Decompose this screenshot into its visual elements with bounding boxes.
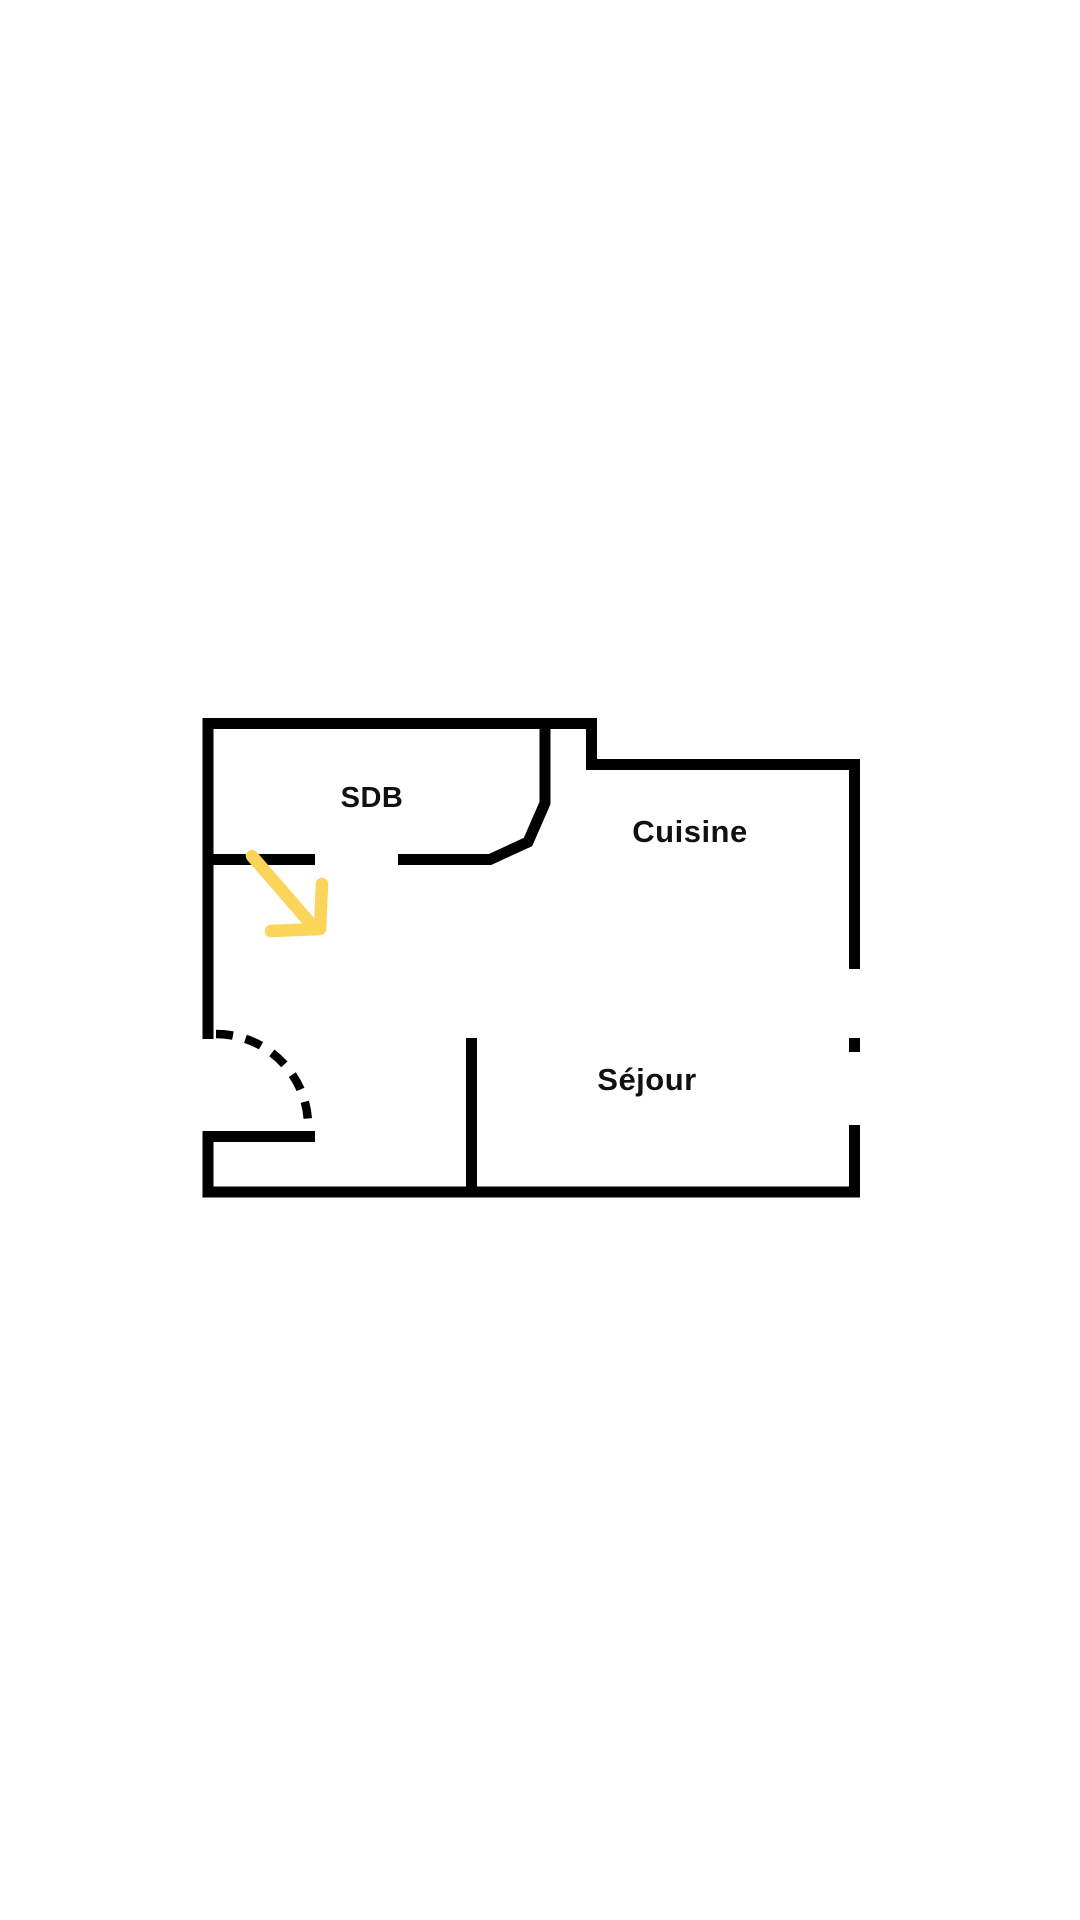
door-swing-arc xyxy=(216,1034,308,1122)
floor-plan-svg: SDB Cuisine Séjour xyxy=(0,0,1080,1920)
room-label-sejour: Séjour xyxy=(597,1062,696,1097)
arrow-shaft xyxy=(252,856,311,924)
wall-sdb-right-slanted xyxy=(398,718,545,860)
room-label-cuisine: Cuisine xyxy=(632,814,747,849)
walls xyxy=(203,718,861,1198)
floor-plan: SDB Cuisine Séjour xyxy=(0,0,1080,1920)
direction-arrow-icon xyxy=(252,856,322,931)
room-label-sdb: SDB xyxy=(341,782,404,814)
